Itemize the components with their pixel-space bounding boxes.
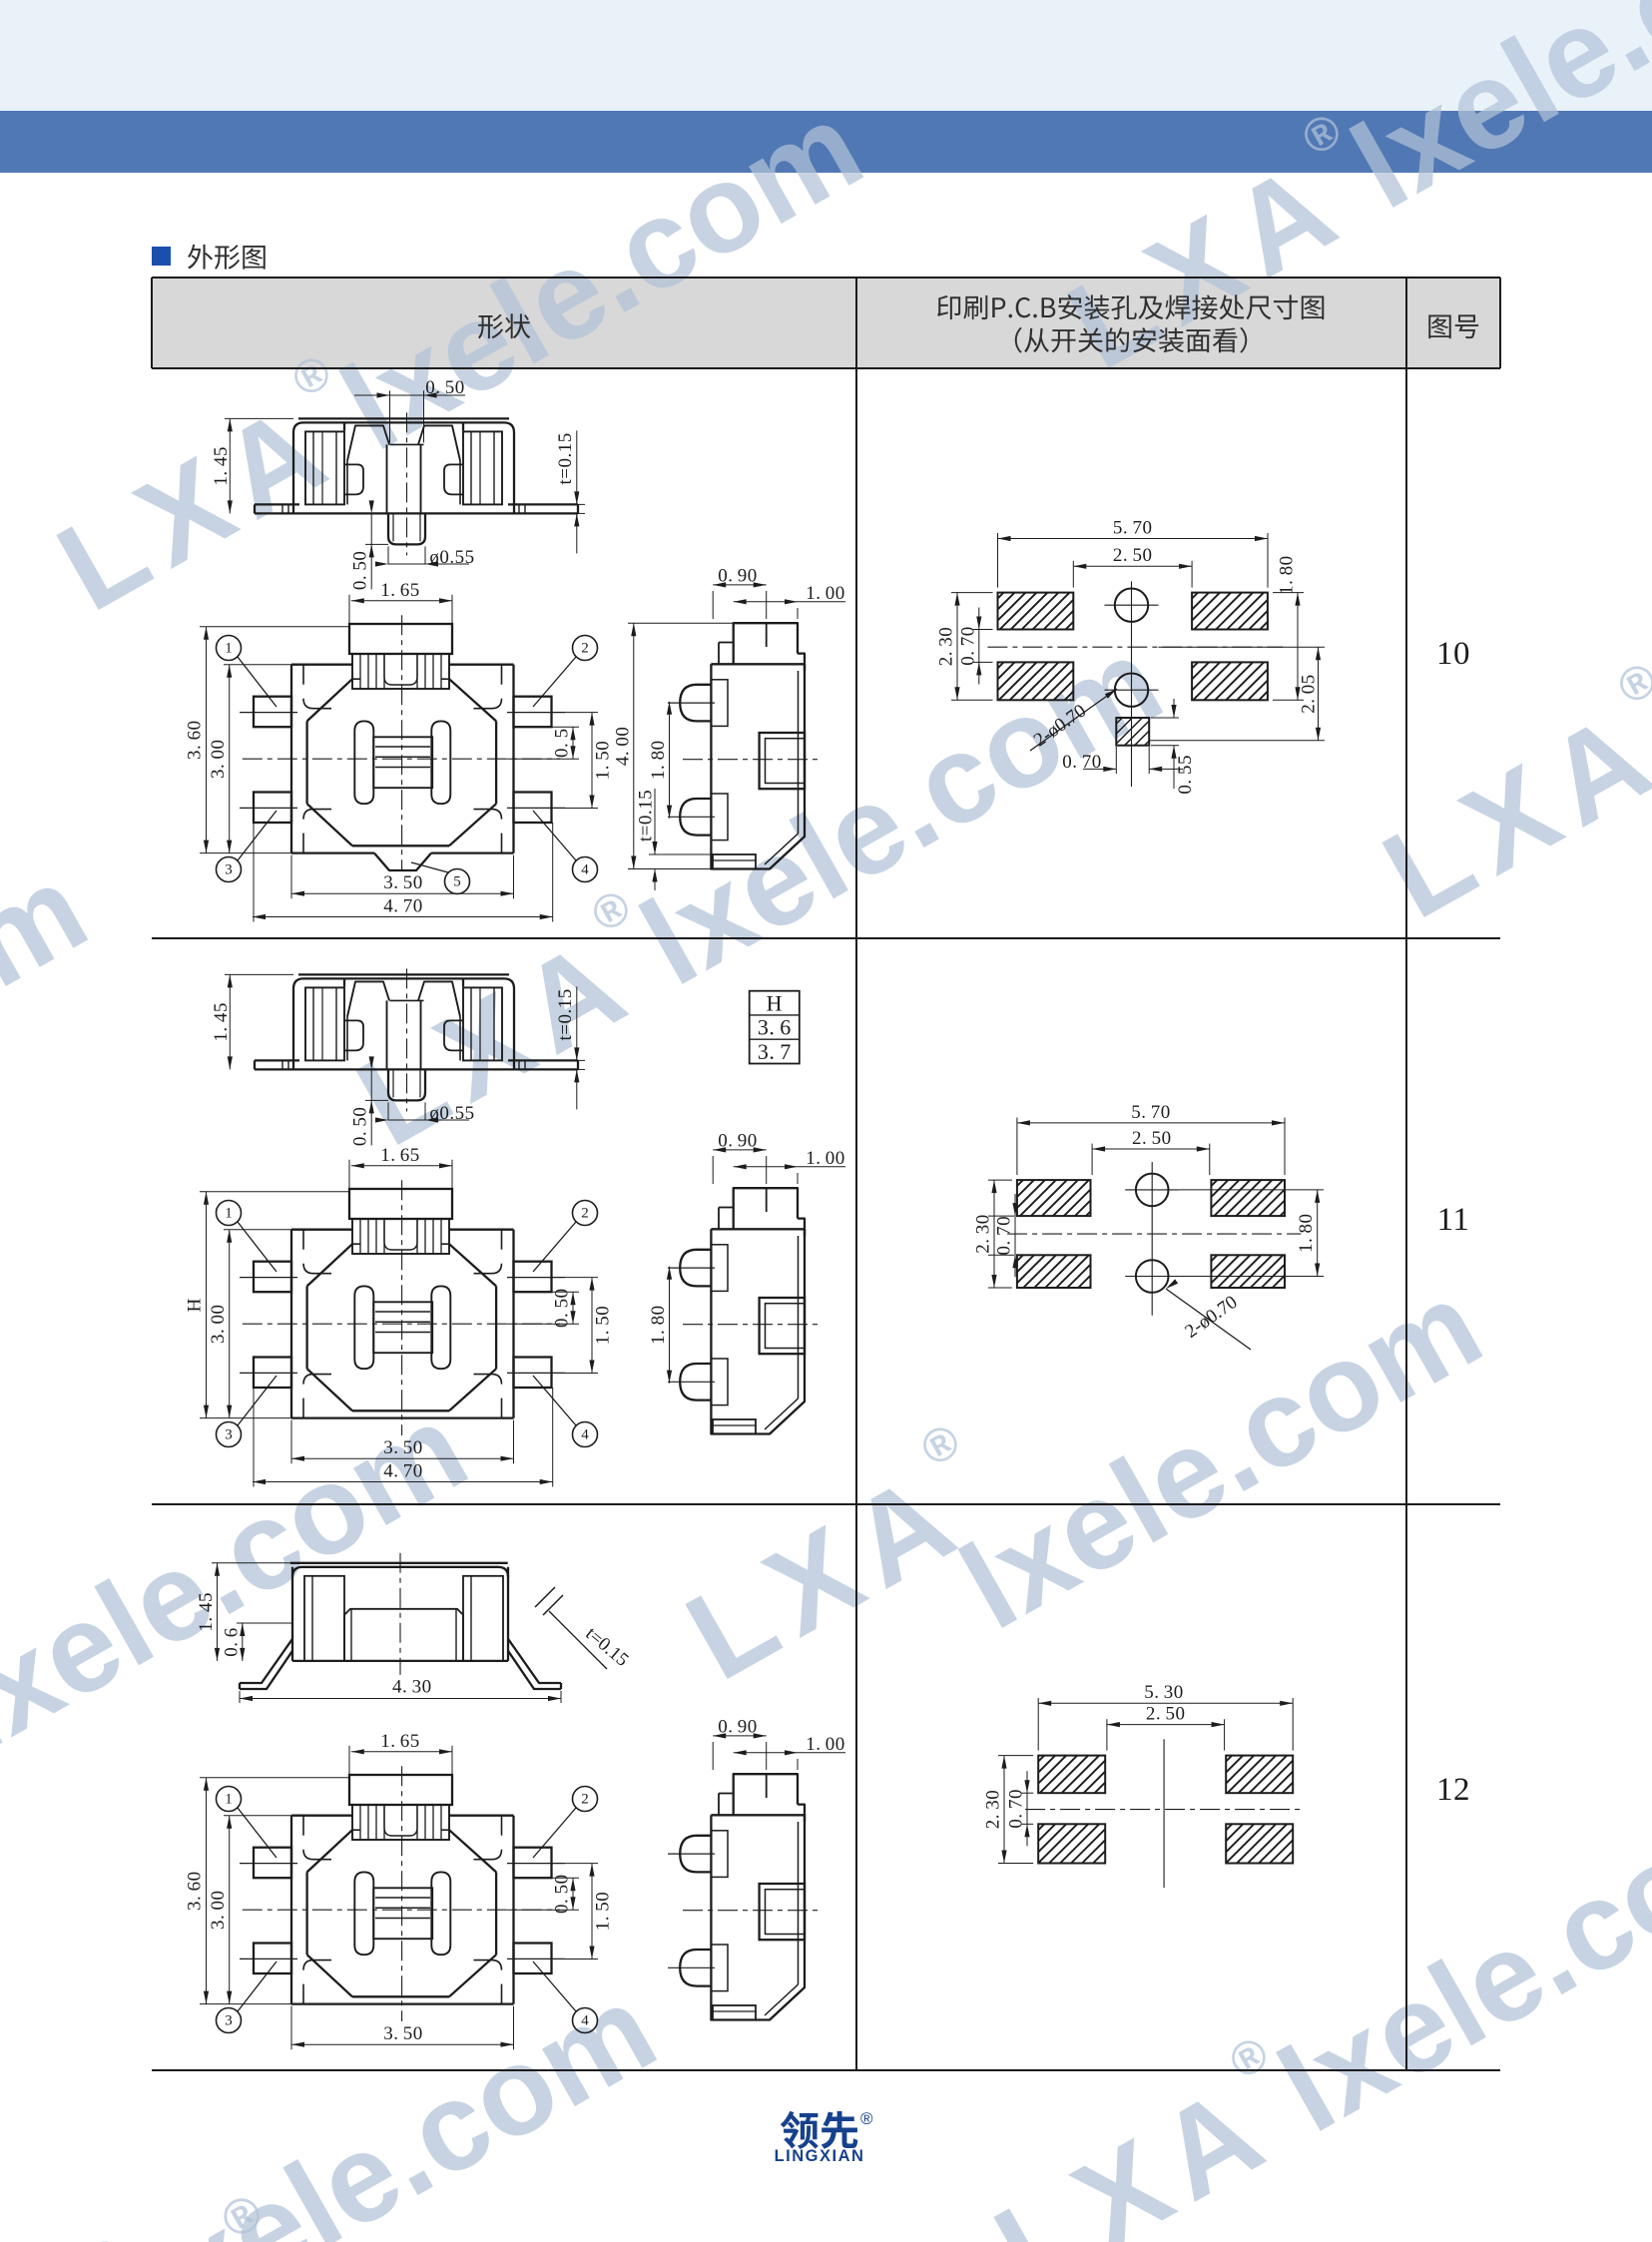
svg-text:3. 50: 3. 50	[383, 2023, 423, 2044]
svg-text:3: 3	[225, 1427, 233, 1443]
svg-text:5: 5	[453, 874, 461, 890]
svg-text:4: 4	[581, 1427, 589, 1443]
svg-text:0. 6: 0. 6	[222, 1627, 243, 1657]
svg-text:0. 70: 0. 70	[1006, 1789, 1027, 1829]
svg-text:1. 45: 1. 45	[211, 446, 232, 486]
svg-text:1. 45: 1. 45	[196, 1592, 217, 1632]
svg-text:3. 60: 3. 60	[185, 720, 206, 760]
svg-text:12: 12	[1436, 1772, 1470, 1808]
svg-text:1. 00: 1. 00	[806, 583, 845, 604]
svg-text:0. 50: 0. 50	[425, 377, 465, 398]
svg-text:2: 2	[581, 1792, 589, 1808]
svg-text:3. 00: 3. 00	[208, 739, 229, 779]
svg-text:0. 70: 0. 70	[994, 1216, 1015, 1256]
svg-text:ø0.55: ø0.55	[429, 547, 474, 568]
svg-text:1. 50: 1. 50	[593, 1892, 614, 1932]
svg-text:4: 4	[581, 862, 589, 878]
svg-text:H: H	[185, 1298, 206, 1312]
svg-text:2. 50: 2. 50	[1132, 1128, 1172, 1149]
svg-text:1. 00: 1. 00	[806, 1734, 845, 1755]
svg-text:0. 50: 0. 50	[350, 551, 371, 591]
svg-text:0. 70: 0. 70	[957, 626, 978, 666]
svg-text:3. 60: 3. 60	[185, 1871, 206, 1911]
svg-text:0. 90: 0. 90	[718, 565, 758, 586]
svg-text:3: 3	[225, 2013, 233, 2029]
svg-text:3. 00: 3. 00	[208, 1304, 229, 1344]
svg-text:4: 4	[581, 2013, 589, 2029]
svg-text:ø0.55: ø0.55	[429, 1103, 474, 1124]
svg-text:0. 50: 0. 50	[552, 1874, 573, 1914]
svg-text:1. 65: 1. 65	[380, 580, 420, 601]
svg-text:2. 30: 2. 30	[973, 1214, 994, 1254]
svg-text:1: 1	[225, 1206, 233, 1222]
svg-text:t=0.15: t=0.15	[636, 790, 657, 841]
svg-text:2. 05: 2. 05	[1299, 674, 1320, 714]
svg-text:1. 80: 1. 80	[648, 740, 669, 780]
svg-text:2: 2	[581, 1206, 589, 1222]
svg-text:2. 30: 2. 30	[936, 627, 957, 667]
svg-text:t=0.15: t=0.15	[555, 988, 576, 1040]
svg-text:0. 70: 0. 70	[1062, 752, 1102, 773]
svg-text:1. 80: 1. 80	[1296, 1213, 1317, 1253]
svg-text:®: ®	[860, 2109, 873, 2128]
svg-text:3: 3	[225, 862, 233, 878]
svg-text:1. 80: 1. 80	[648, 1305, 669, 1345]
svg-text:1. 80: 1. 80	[1276, 555, 1297, 595]
svg-text:5. 70: 5. 70	[1113, 517, 1153, 538]
svg-text:3. 7: 3. 7	[758, 1039, 792, 1064]
svg-text:t=0.15: t=0.15	[581, 1623, 632, 1671]
svg-text:4. 70: 4. 70	[383, 1460, 423, 1481]
svg-text:3. 50: 3. 50	[383, 1437, 423, 1458]
svg-text:H: H	[767, 990, 783, 1015]
svg-text:4. 00: 4. 00	[612, 727, 633, 767]
svg-text:2: 2	[581, 641, 589, 657]
svg-text:2. 50: 2. 50	[1113, 545, 1153, 566]
svg-text:5. 70: 5. 70	[1131, 1102, 1171, 1123]
svg-text:1: 1	[225, 1792, 233, 1808]
svg-text:2-ø0.70: 2-ø0.70	[1181, 1292, 1241, 1343]
svg-text:3. 50: 3. 50	[383, 872, 423, 893]
svg-text:0. 50: 0. 50	[350, 1107, 371, 1147]
svg-text:10: 10	[1436, 636, 1470, 672]
svg-text:1. 45: 1. 45	[211, 1002, 232, 1042]
svg-text:1. 65: 1. 65	[380, 1731, 420, 1752]
svg-text:11: 11	[1437, 1202, 1470, 1238]
svg-text:1. 00: 1. 00	[806, 1148, 845, 1169]
svg-text:2-ø0.70: 2-ø0.70	[1030, 701, 1090, 752]
svg-text:0. 55: 0. 55	[1175, 755, 1196, 795]
svg-text:2. 50: 2. 50	[1146, 1703, 1186, 1724]
svg-text:0. 90: 0. 90	[718, 1130, 758, 1151]
svg-text:t=0.15: t=0.15	[555, 432, 576, 484]
svg-text:0. 90: 0. 90	[718, 1716, 758, 1737]
svg-text:4. 30: 4. 30	[392, 1677, 432, 1698]
svg-text:1. 50: 1. 50	[593, 1306, 614, 1346]
svg-text:1: 1	[225, 641, 233, 657]
svg-text:0. 5: 0. 5	[552, 728, 573, 758]
svg-text:LINGXIAN: LINGXIAN	[775, 2147, 865, 2165]
svg-text:1. 50: 1. 50	[593, 741, 614, 781]
svg-text:0. 50: 0. 50	[552, 1288, 573, 1328]
svg-text:5. 30: 5. 30	[1144, 1682, 1184, 1703]
svg-text:1. 65: 1. 65	[380, 1145, 420, 1166]
svg-text:2. 30: 2. 30	[983, 1790, 1004, 1830]
svg-text:4. 70: 4. 70	[383, 895, 423, 916]
svg-text:3. 00: 3. 00	[208, 1890, 229, 1930]
svg-text:3. 6: 3. 6	[758, 1015, 792, 1040]
